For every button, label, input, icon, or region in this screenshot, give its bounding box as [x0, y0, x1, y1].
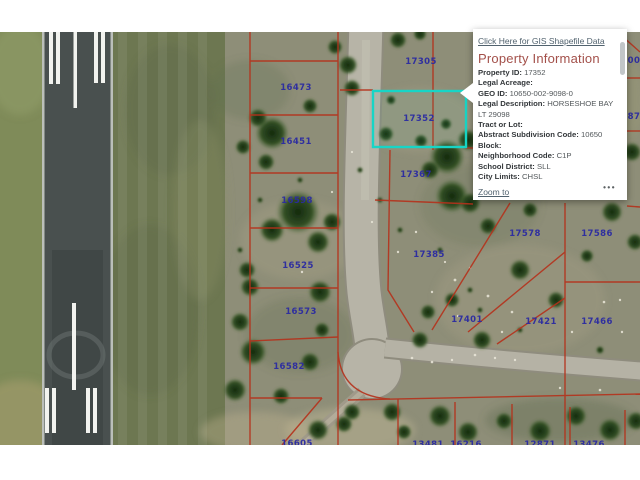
popup-title: Property Information: [478, 51, 600, 66]
property-field-value: 10650: [579, 130, 603, 139]
property-field-value: 10650-002-9098-0: [507, 89, 572, 98]
gis-viewer-window: 1642616473164511659816525165731658216605…: [0, 0, 640, 480]
property-field: City Limits: CHSL: [478, 172, 623, 182]
parcel-label[interactable]: 17466: [581, 317, 613, 327]
parcel-label[interactable]: 16582: [273, 362, 305, 372]
zoom-to-link[interactable]: Zoom to: [478, 187, 509, 197]
parcel-label[interactable]: 16473: [280, 83, 312, 93]
property-field-label: Abstract Subdivision Code:: [478, 130, 579, 139]
gis-shapefile-link[interactable]: Click Here for GIS Shapefile Data: [478, 36, 605, 46]
property-field: Legal Description: HORSESHOE BAY LT 2909…: [478, 99, 623, 120]
property-field: School District: SLL: [478, 162, 623, 172]
parcel-label[interactable]: 16598: [281, 196, 313, 206]
parcel-label[interactable]: 16451: [280, 137, 312, 147]
parcel-label[interactable]: 17401: [451, 315, 483, 325]
property-field-label: City Limits:: [478, 172, 520, 181]
popup-scrollbar[interactable]: [620, 42, 625, 75]
property-field-label: School District:: [478, 162, 535, 171]
property-field: Tract or Lot:: [478, 120, 623, 130]
parcel-label[interactable]: 17578: [509, 229, 541, 239]
top-margin: [0, 0, 640, 32]
popup-footer: Zoom to •••: [478, 182, 622, 200]
parcel-label[interactable]: 17385: [413, 250, 445, 260]
parcel-label[interactable]: 17305: [405, 57, 437, 67]
property-field-label: Property ID:: [478, 68, 522, 77]
bottom-margin: [0, 445, 640, 480]
parcel-label[interactable]: 16525: [282, 261, 314, 271]
property-field-label: Legal Acreage:: [478, 78, 533, 87]
property-field-label: GEO ID:: [478, 89, 507, 98]
property-field-value: 17352: [522, 68, 546, 77]
property-field-label: Neighborhood Code:: [478, 151, 554, 160]
property-fields: Property ID: 17352Legal Acreage:GEO ID: …: [478, 68, 623, 182]
property-field-label: Legal Description:: [478, 99, 545, 108]
parcel-label[interactable]: 87: [628, 112, 640, 122]
parcel-label[interactable]: 17421: [525, 317, 557, 327]
property-field: Legal Acreage:: [478, 78, 623, 88]
parcel-label[interactable]: 17352: [403, 114, 435, 124]
parcel-label[interactable]: 16573: [285, 307, 317, 317]
parcel-label[interactable]: 00: [628, 56, 640, 66]
popup-pointer: [460, 83, 473, 103]
property-field-value: C1P: [554, 151, 571, 160]
property-field: Block:: [478, 141, 623, 151]
property-field-label: Block:: [478, 141, 502, 150]
property-field-value: SLL: [535, 162, 551, 171]
property-field: Neighborhood Code: C1P: [478, 151, 623, 161]
property-field-value: CHSL: [520, 172, 543, 181]
property-field-label: Tract or Lot:: [478, 120, 523, 129]
parcel-label[interactable]: 17586: [581, 229, 613, 239]
parcel-label[interactable]: 17367: [400, 170, 432, 180]
property-field: Property ID: 17352: [478, 68, 623, 78]
property-info-popup: Click Here for GIS Shapefile Data Proper…: [473, 29, 627, 200]
property-field: Abstract Subdivision Code: 10650: [478, 130, 623, 140]
property-field: GEO ID: 10650-002-9098-0: [478, 89, 623, 99]
ellipsis-menu-icon[interactable]: •••: [603, 183, 616, 192]
